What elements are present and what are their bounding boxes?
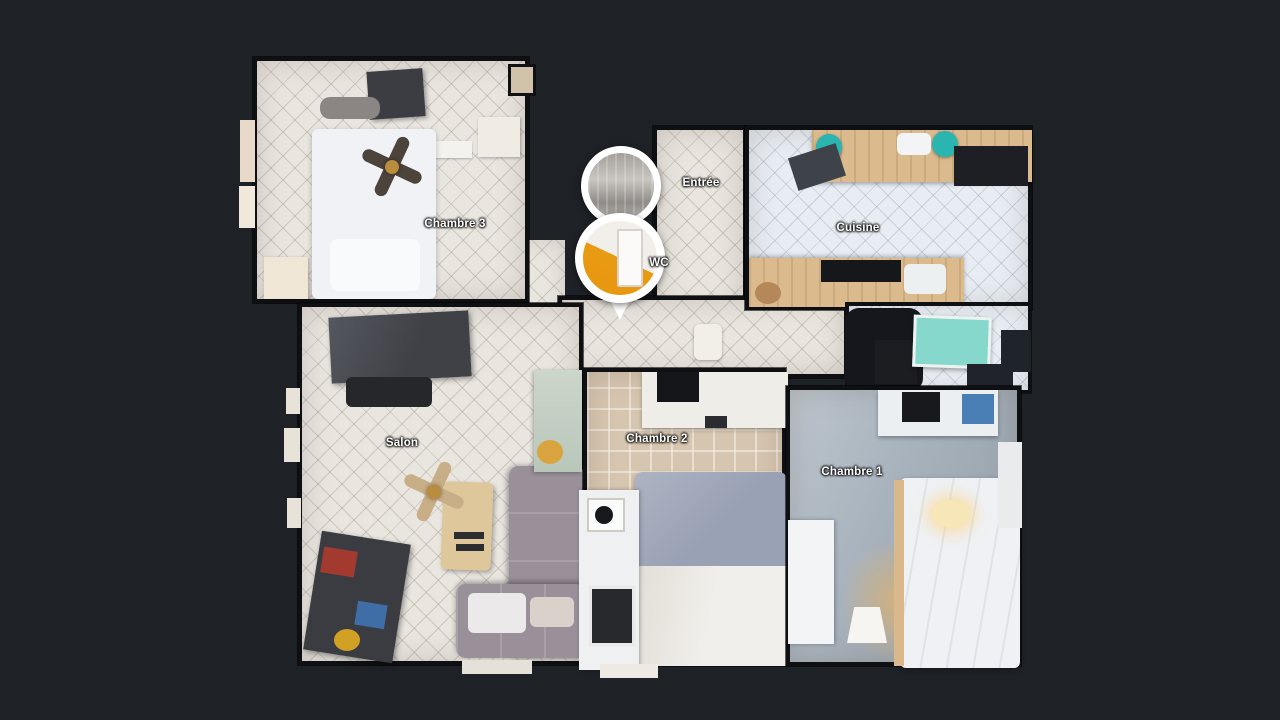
cat: [320, 97, 380, 119]
small-object: [705, 416, 727, 428]
bed-duvet: [635, 472, 787, 568]
remote: [454, 532, 484, 539]
sink: [897, 133, 931, 155]
room-label-chambre-2: Chambre 2: [626, 433, 687, 445]
cabinet: [1001, 330, 1031, 372]
monitor: [589, 586, 635, 646]
remote: [456, 544, 484, 551]
room-chambre-3[interactable]: [253, 57, 529, 303]
room-entree-corridor[interactable]: [653, 126, 747, 316]
sofa-pillow: [530, 597, 574, 627]
room-label-chambre-3: Chambre 3: [424, 218, 485, 230]
wall-protrusion: [284, 428, 300, 462]
wc-photo-door: [617, 229, 643, 287]
wardrobe-gap: [657, 372, 699, 402]
bed-frame-edge: [894, 480, 904, 666]
dollhouse-viewport[interactable]: Chambre 3 Entrée Cuisine WC Salon Chambr…: [0, 0, 1280, 720]
room-label-salon: Salon: [386, 437, 418, 449]
yellow-object: [334, 629, 360, 651]
room-chambre-1[interactable]: [786, 386, 1021, 666]
basket: [755, 282, 781, 304]
sofa-blanket: [468, 593, 526, 633]
cabinet: [478, 117, 520, 157]
wardrobe: [998, 442, 1022, 528]
room-label-wc: WC: [649, 257, 669, 269]
bed-pillow: [330, 239, 420, 291]
hallway-object: [694, 324, 722, 360]
storage-box: [264, 257, 308, 299]
blue-bin: [962, 394, 994, 424]
room-chambre-2[interactable]: [583, 368, 786, 666]
chair: [875, 340, 917, 384]
chairs: [346, 377, 432, 407]
bed-sheet: [635, 566, 787, 666]
blue-object: [354, 601, 387, 629]
room-salon[interactable]: [298, 303, 583, 665]
wall-protrusion: [240, 120, 255, 182]
kitchen-dining-nook[interactable]: [845, 302, 1032, 394]
closet-nook: [508, 64, 536, 96]
bowl: [595, 506, 613, 524]
yellow-ball: [537, 440, 563, 464]
balcony-sill: [462, 660, 532, 674]
dining-table: [912, 315, 992, 370]
wall-protrusion: [286, 388, 300, 414]
room-label-cuisine: Cuisine: [837, 222, 880, 234]
scan-fragment: [600, 664, 658, 678]
red-object: [320, 547, 358, 578]
room-cuisine[interactable]: [745, 126, 1032, 310]
wall-protrusion: [239, 186, 255, 228]
room-label-chambre-1: Chambre 1: [821, 466, 882, 478]
bed-lamp-spot: [932, 500, 970, 528]
dining-table: [328, 310, 471, 383]
shelf-gap: [902, 392, 940, 422]
kitchen-desk: [954, 146, 1028, 186]
wall-protrusion: [287, 498, 301, 528]
range-hood: [788, 143, 846, 191]
cooktop: [821, 260, 901, 282]
room-label-entree: Entrée: [683, 177, 720, 189]
desk: [788, 520, 834, 644]
dish-rack: [904, 264, 946, 294]
